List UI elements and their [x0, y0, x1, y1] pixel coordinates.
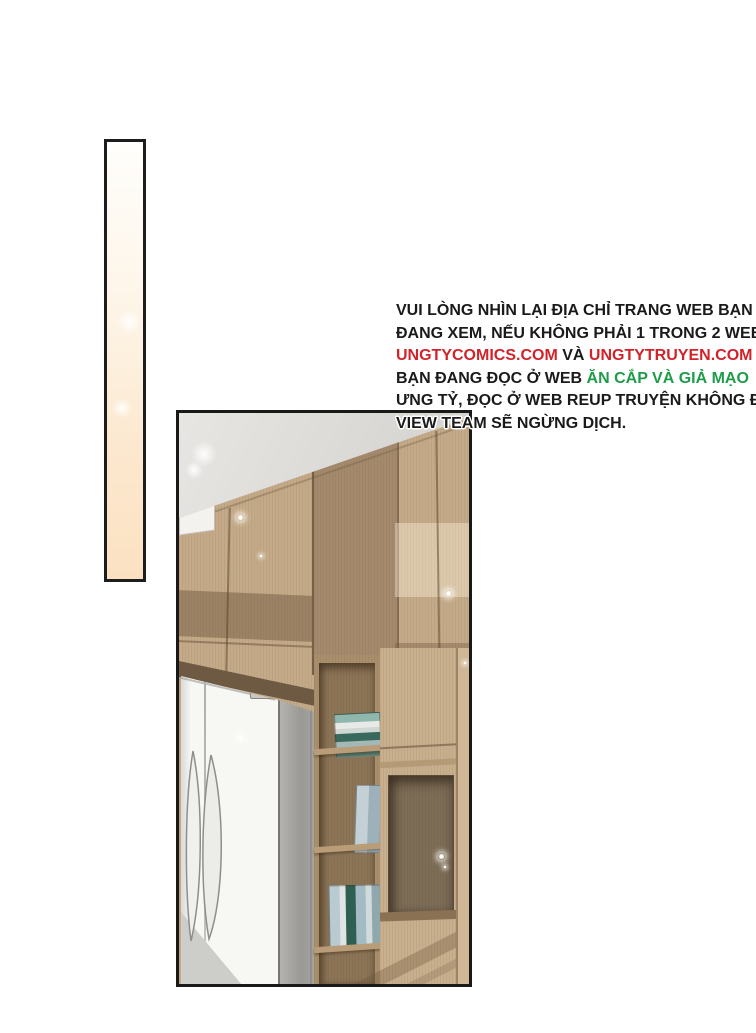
notice-line: VUI LÒNG NHÌN LẠI ĐỊA CHỈ TRANG WEB BẠN [396, 300, 756, 323]
site-url: UNGTYTRUYEN.COM [589, 347, 753, 364]
notice-line: VIEW TEAM SẼ NGỪNG DỊCH. [396, 413, 756, 436]
notice-segment: THÌ [752, 347, 756, 364]
sparkle [237, 514, 244, 521]
warning-text-block: VUI LÒNG NHÌN LẠI ĐỊA CHỈ TRANG WEB BẠN … [396, 300, 756, 435]
sparkle [259, 554, 263, 558]
comic-panel [176, 410, 472, 987]
kitchen-scene [179, 413, 469, 984]
bar-glow-spot [112, 398, 132, 418]
comic-page: VUI LÒNG NHÌN LẠI ĐỊA CHỈ TRANG WEB BẠN … [0, 0, 756, 1033]
bookshelf [314, 655, 380, 984]
sparkle [443, 865, 447, 869]
ceiling-glow [185, 461, 203, 479]
tall-cabinet-column [312, 413, 399, 675]
sparkle [463, 661, 467, 665]
notice-line: BẠN ĐANG ĐỌC Ở WEB ĂN CẮP VÀ GIẢ MẠO [396, 368, 756, 391]
books-vertical-bottom [328, 885, 381, 950]
notice-segment: ƯNG TỶ, ĐỌC Ở WEB REUP TRUYỆN KHÔNG ĐỦ [396, 392, 756, 409]
white-cabinet [179, 498, 215, 535]
cabinet-door-line [179, 640, 312, 648]
cabinet-seam [225, 508, 230, 673]
bar-glow-spot [117, 310, 141, 334]
notice-segment: VIEW TEAM SẼ NGỪNG DỊCH. [396, 415, 626, 432]
notice-segment: ĐANG XEM, NẾU KHÔNG PHẢI 1 TRONG 2 WEB [396, 325, 756, 342]
notice-segment: BẠN ĐANG ĐỌC Ở WEB [396, 370, 587, 387]
fridge-side-panel [278, 671, 318, 984]
fridge-handles [181, 745, 233, 947]
cabinet-highlight [395, 523, 469, 597]
notice-line: ƯNG TỶ, ĐỌC Ở WEB REUP TRUYỆN KHÔNG ĐỦ [396, 390, 756, 413]
cabinet-open-niche [388, 775, 454, 913]
notice-line: UNGTYCOMICS.COM VÀ UNGTYTRUYEN.COM THÌ [396, 345, 756, 368]
bookshelf-interior [319, 663, 375, 984]
warning-words: ĂN CẮP VÀ GIẢ MẠO [587, 370, 749, 387]
site-url: UNGTYCOMICS.COM [396, 347, 558, 364]
sparkle [237, 735, 244, 742]
right-cabinet [380, 648, 469, 984]
cabinet-stile [456, 648, 469, 984]
notice-line: ĐANG XEM, NẾU KHÔNG PHẢI 1 TRONG 2 WEB [396, 323, 756, 346]
sparkle [445, 590, 452, 597]
notice-segment: VUI LÒNG NHÌN LẠI ĐỊA CHỈ TRANG WEB BẠN [396, 302, 753, 319]
decor-gradient-bar [104, 139, 146, 582]
cabinet-shadow-band [179, 590, 312, 642]
notice-segment: VÀ [558, 347, 589, 364]
sparkle [438, 853, 445, 860]
